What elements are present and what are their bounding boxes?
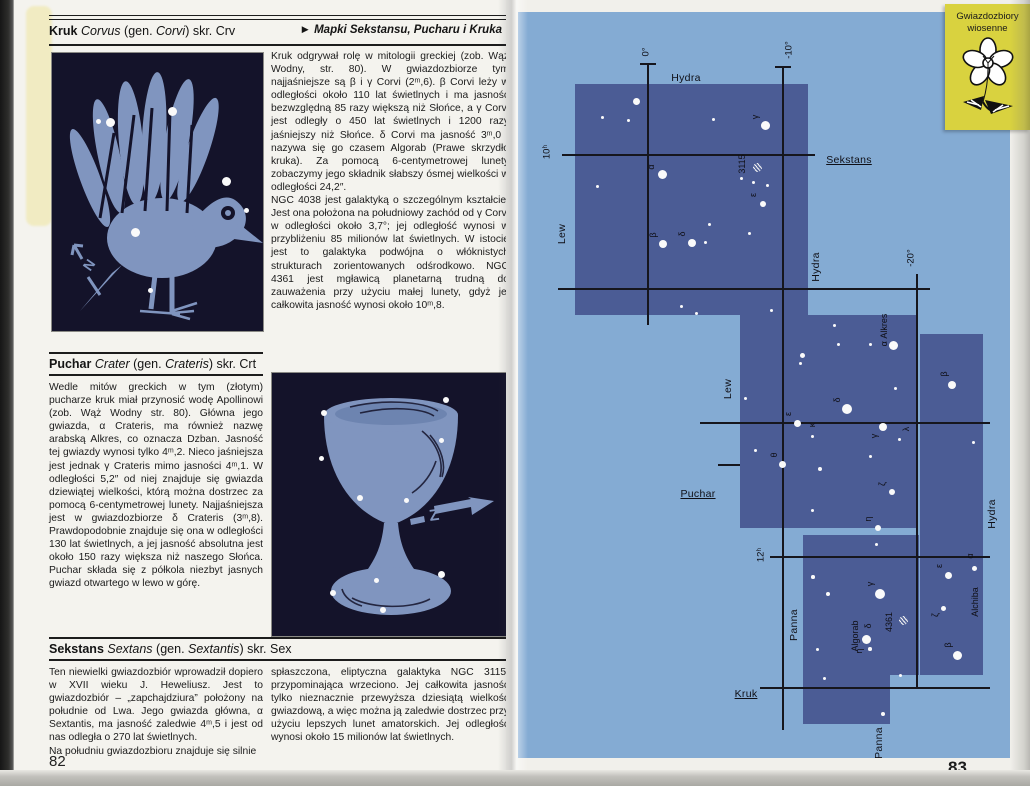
tab-bleed-through — [26, 6, 52, 226]
map-label: ζ — [877, 482, 887, 486]
map-label: γ — [865, 582, 875, 587]
map-star — [818, 467, 822, 471]
map-label: Panna — [873, 727, 885, 758]
paragraph: spłaszczona, eliptyczna galaktyka NGC 31… — [271, 666, 509, 745]
map-label: Alchiba — [970, 587, 980, 617]
map-star — [868, 647, 872, 651]
map-label: Lew — [556, 224, 568, 244]
map-star — [704, 241, 707, 244]
map-star — [875, 525, 881, 531]
corvus-illustration: N — [51, 52, 264, 332]
heading-gen: (gen. — [156, 642, 188, 656]
puchar-rule-top — [49, 352, 263, 354]
figure-star — [106, 118, 115, 127]
map-star — [869, 343, 872, 346]
map-star — [688, 239, 696, 247]
map-label: Algorab — [850, 620, 860, 651]
heading-gen-latin: Sextantis — [188, 642, 239, 656]
map-label: Lew — [722, 379, 734, 399]
figure-star — [319, 456, 324, 461]
map-star — [879, 423, 887, 431]
figure-star — [380, 607, 386, 613]
map-star — [601, 116, 604, 119]
map-label: β — [939, 371, 949, 376]
map-label-coordinate: -20° — [906, 249, 917, 267]
map-star — [766, 184, 769, 187]
grid-line — [718, 464, 740, 466]
map-star — [811, 509, 814, 512]
heading-gen-latin: Crateris — [165, 357, 209, 371]
map-label-coordinate: -10° — [784, 41, 795, 59]
map-label: β — [648, 232, 658, 237]
grid-line — [916, 274, 918, 688]
book-spine — [0, 0, 14, 786]
heading-name: Puchar — [49, 357, 91, 371]
map-label: ζ — [930, 613, 940, 617]
heading-gen-latin: Corvi — [156, 24, 185, 38]
map-label: δ — [677, 231, 687, 236]
grid-line — [770, 556, 990, 558]
heading-name: Sekstans — [49, 642, 104, 656]
right-page: 0°-10°-20°10ʰ12ʰHydraSekstansLewHydraLew… — [506, 0, 1030, 770]
map-star — [945, 572, 952, 579]
heading-gen: (gen. — [124, 24, 156, 38]
map-label: α — [965, 553, 975, 558]
paragraph: Na południu gwiazdozbioru znajduje się s… — [49, 745, 263, 758]
paragraph: Wedle mitów greckich w tym (złotym) puch… — [49, 381, 263, 591]
figure-star — [438, 571, 445, 578]
page-edge — [1010, 0, 1030, 770]
map-star — [899, 674, 902, 677]
figure-star — [131, 228, 140, 237]
map-star — [695, 312, 698, 315]
top-double-rule — [49, 15, 509, 20]
map-label: ε — [748, 193, 758, 197]
figure-star — [374, 578, 379, 583]
region-gap — [803, 528, 919, 535]
map-label-constellation: Sekstans — [826, 154, 872, 166]
figure-star — [96, 119, 101, 124]
map-label: κ — [807, 423, 817, 428]
map-star — [658, 170, 667, 179]
paragraph: NGC 4038 jest galaktyką o szczególnym ks… — [271, 194, 509, 312]
map-label: Hydra — [810, 252, 822, 282]
map-star — [948, 381, 956, 389]
puchar-body: Wedle mitów greckich w tym (złotym) puch… — [49, 381, 263, 591]
book-spread: Kruk Corvus (gen. Corvi) skr. Crv ► Mapk… — [0, 0, 1030, 786]
map-star — [972, 441, 975, 444]
map-label: β — [943, 642, 953, 647]
map-label: θ — [769, 452, 779, 457]
constellation-region — [803, 675, 890, 724]
map-star — [862, 635, 871, 644]
grid-line — [562, 154, 815, 156]
grid-line — [760, 687, 990, 689]
map-label: η — [863, 516, 873, 521]
map-star — [680, 305, 683, 308]
map-star — [881, 712, 885, 716]
map-label-constellation: Puchar — [680, 488, 715, 500]
map-label: α — [646, 164, 656, 169]
book-bottom-edge — [0, 770, 1030, 786]
goblet-drawing: Z — [272, 373, 510, 636]
crater-illustration: Z — [271, 372, 511, 637]
crow-drawing: N — [52, 53, 263, 331]
map-star — [941, 606, 946, 611]
map-star — [898, 438, 901, 441]
map-label-coordinate: 12ʰ — [756, 548, 767, 562]
map-star — [779, 461, 786, 468]
map-star — [837, 343, 840, 346]
sekstans-rule-bottom — [49, 659, 509, 661]
figure-star — [244, 208, 249, 213]
heading-name: Kruk — [49, 24, 77, 38]
map-label-coordinate: 0° — [641, 47, 652, 56]
heading-gen: (gen. — [133, 357, 165, 371]
map-star — [794, 420, 801, 427]
section-heading-kruk: Kruk Corvus (gen. Corvi) skr. Crv — [49, 24, 235, 38]
grid-line — [775, 66, 791, 68]
map-label: ε — [934, 564, 944, 568]
map-star — [627, 119, 630, 122]
map-star — [823, 677, 826, 680]
map-label: 4361 — [884, 612, 894, 632]
map-star — [799, 362, 802, 365]
sekstans-rule-top — [49, 637, 509, 639]
map-star — [894, 387, 897, 390]
map-star — [875, 589, 885, 599]
arrow-right-icon: ► — [300, 24, 311, 36]
map-label: γ — [869, 434, 879, 439]
heading-latin: Corvus — [81, 24, 121, 38]
map-star — [800, 353, 805, 358]
map-label: γ — [750, 115, 760, 120]
map-star — [708, 223, 711, 226]
figure-star — [148, 288, 153, 293]
map-star — [770, 309, 773, 312]
grid-line — [782, 67, 784, 730]
map-label: ε — [783, 412, 793, 416]
map-star — [754, 449, 757, 452]
map-label-constellation: Kruk — [735, 688, 758, 700]
map-reference: ► Mapki Sekstansu, Pucharu i Kruka — [300, 24, 503, 36]
map-label: Hydra — [671, 72, 701, 84]
map-star — [744, 397, 747, 400]
figure-star — [330, 590, 336, 596]
north-arrow-label: N — [79, 256, 98, 273]
map-star — [842, 404, 852, 414]
map-star — [869, 455, 872, 458]
heading-abbr: ) skr. Crt — [209, 357, 256, 371]
map-star — [752, 181, 755, 184]
map-star — [811, 435, 814, 438]
map-star — [889, 489, 895, 495]
map-reference-text: Mapki Sekstansu, Pucharu i Kruka — [314, 24, 502, 36]
constellation-region — [575, 84, 808, 315]
section-heading-sekstans: Sekstans Sextans (gen. Sextantis) skr. S… — [49, 642, 292, 656]
map-star — [596, 185, 599, 188]
map-star — [816, 648, 819, 651]
map-label: δ — [832, 397, 842, 402]
tab-line2: wiosenne — [967, 23, 1007, 34]
figure-star — [439, 438, 444, 443]
map-label: δ — [863, 623, 873, 628]
figure-star — [443, 397, 449, 403]
heading-abbr: ) skr. Sex — [239, 642, 291, 656]
map-label: 3115 — [737, 154, 747, 173]
map-label: η — [854, 648, 864, 653]
map-star — [833, 324, 836, 327]
map-label: λ — [901, 427, 911, 432]
figure-star — [357, 495, 363, 501]
section-heading-puchar: Puchar Crater (gen. Crateris) skr. Crt — [49, 357, 256, 371]
puchar-rule-bottom — [49, 374, 263, 376]
deep-sky-object — [753, 163, 762, 172]
heading-latin: Crater — [95, 357, 130, 371]
map-star — [953, 651, 962, 660]
map-star — [659, 240, 667, 248]
map-star — [875, 543, 878, 546]
map-star — [761, 121, 770, 130]
page-number-82: 82 — [49, 753, 66, 770]
map-star — [740, 177, 743, 180]
paragraph: Kruk odgrywał rolę w mitologii greckiej … — [271, 50, 509, 194]
map-star — [748, 232, 751, 235]
map-label: Panna — [788, 609, 800, 641]
kruk-body: Kruk odgrywał rolę w mitologii greckiej … — [271, 50, 509, 312]
grid-line — [700, 422, 990, 424]
map-star — [889, 341, 898, 350]
book-gutter — [498, 0, 528, 770]
map-label-coordinate: 10ʰ — [542, 145, 553, 159]
star-map: 0°-10°-20°10ʰ12ʰHydraSekstansLewHydraLew… — [518, 12, 1010, 758]
heading-rule — [49, 44, 509, 46]
grid-line — [558, 288, 930, 290]
map-star — [760, 201, 766, 207]
map-label: Hydra — [986, 499, 998, 529]
figure-star — [404, 498, 409, 503]
sekstans-body-left: Ten niewielki gwiazdozbiór wprowadził do… — [49, 666, 263, 758]
map-star — [972, 566, 977, 571]
map-star — [811, 575, 815, 579]
paragraph: Ten niewielki gwiazdozbiór wprowadził do… — [49, 666, 263, 745]
figure-star — [321, 410, 327, 416]
heading-abbr: ) skr. Crv — [185, 24, 235, 38]
figure-star — [222, 177, 231, 186]
heading-latin: Sextans — [107, 642, 152, 656]
left-page: Kruk Corvus (gen. Corvi) skr. Crv ► Mapk… — [14, 0, 506, 770]
sekstans-body-right: spłaszczona, eliptyczna galaktyka NGC 31… — [271, 666, 509, 745]
grid-line — [640, 63, 656, 65]
map-star — [633, 98, 640, 105]
grid-line — [647, 64, 649, 325]
map-star — [712, 118, 715, 121]
deep-sky-object — [899, 616, 908, 625]
figure-star — [168, 107, 177, 116]
map-label: α Alkres — [879, 314, 889, 347]
